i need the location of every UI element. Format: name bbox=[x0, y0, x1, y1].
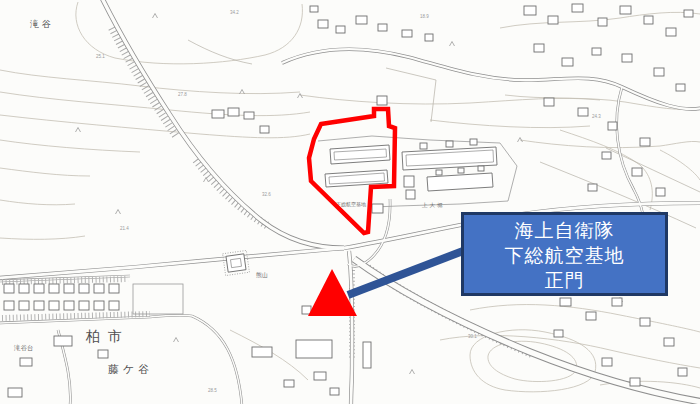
place-labels: 滝谷 柏市 藤ケ谷 滝谷台 下総航空基地 上大堀 熊山 bbox=[14, 19, 445, 375]
label-takiya: 滝谷 bbox=[30, 19, 54, 29]
callout-line-3: 正門 bbox=[464, 268, 665, 293]
spot-elevation: 28.5 bbox=[208, 388, 217, 393]
spot-elevation: 21.4 bbox=[120, 226, 129, 231]
callout-line-1: 海上自衛隊 bbox=[464, 218, 665, 243]
spot-elevation: 25.1 bbox=[96, 54, 105, 59]
spot-elevation: 27.8 bbox=[178, 92, 187, 97]
callout-line-2: 下総航空基地 bbox=[464, 243, 665, 268]
label-kashiwa-city: 柏市 bbox=[85, 328, 130, 344]
base-compound bbox=[318, 96, 517, 213]
spot-elevation: 24.3 bbox=[592, 114, 601, 119]
gate-callout: 海上自衛隊 下総航空基地 正門 bbox=[461, 212, 668, 296]
shrine-compound bbox=[223, 250, 250, 275]
label-kamioobori: 上大堀 bbox=[422, 202, 445, 208]
residential-grid bbox=[2, 279, 183, 318]
label-takiyadai: 滝谷台 bbox=[14, 344, 34, 352]
spot-elevation: 30.1 bbox=[468, 334, 477, 339]
vegetation-symbols bbox=[76, 14, 623, 375]
spot-elevations: 34.2 25.1 27.8 21.4 32.6 18.9 24.3 30.1 … bbox=[96, 10, 667, 393]
topo-map: 滝谷 柏市 藤ケ谷 滝谷台 下総航空基地 上大堀 熊山 34.2 25.1 27… bbox=[0, 0, 700, 404]
spot-elevation: 18.9 bbox=[420, 14, 429, 19]
spot-elevation: 34.2 bbox=[230, 10, 239, 15]
label-fujigaya: 藤ケ谷 bbox=[108, 363, 153, 375]
spot-elevation: 32.6 bbox=[262, 192, 271, 197]
map-screenshot: 滝谷 柏市 藤ケ谷 滝谷台 下総航空基地 上大堀 熊山 34.2 25.1 27… bbox=[0, 0, 700, 404]
label-kumayama: 熊山 bbox=[256, 272, 268, 278]
